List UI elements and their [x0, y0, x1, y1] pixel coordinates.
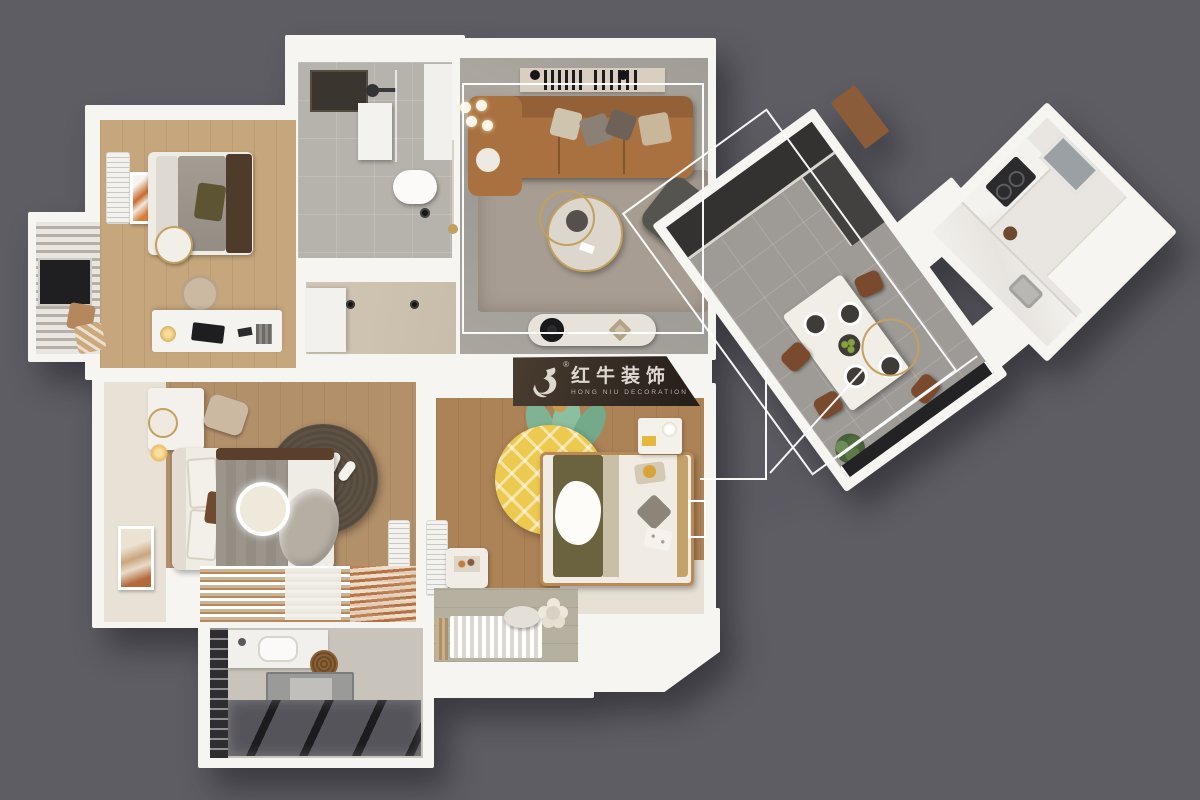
- accent-vline: [765, 368, 767, 480]
- laundry-glass-windows: [228, 700, 421, 756]
- floorplan-render: ® 红牛装饰 HONG NIU DECORATION: [0, 0, 1200, 800]
- laptop: [191, 322, 225, 344]
- shelf-knob-2: [618, 70, 628, 80]
- hall-spotlight-2: [410, 300, 419, 309]
- wardrobe-orange-slats: [350, 566, 416, 622]
- bedroom2-round-table: [155, 226, 193, 264]
- toilet: [393, 170, 437, 204]
- shelf-knob-1: [530, 70, 540, 80]
- kids-blanket-fold: [603, 455, 619, 577]
- logo-text-cn: 红牛装饰: [571, 367, 688, 387]
- laundry-sink: [258, 636, 298, 662]
- bathroom-vanity: [424, 64, 452, 160]
- kids-room-bottom-wall: [574, 608, 720, 692]
- nook-oval-table: [504, 606, 540, 628]
- logo-text-block: 红牛装饰 HONG NIU DECORATION: [571, 367, 688, 396]
- kids-book: [642, 436, 656, 446]
- kids-wall-art: [688, 500, 706, 538]
- entry-door-panel: [831, 85, 890, 149]
- phone: [237, 327, 252, 337]
- arc-floor-lamp: [452, 140, 454, 230]
- bull-logo-icon: ®: [529, 364, 563, 400]
- kids-toy-duck: [643, 465, 656, 478]
- bay-cushion-2: [73, 321, 106, 354]
- flower-center: [546, 606, 560, 620]
- kids-pillow-star: [636, 494, 673, 531]
- kids-lamp: [662, 422, 677, 437]
- wardrobe-louver-doors: [200, 566, 416, 622]
- kids-radiator: [426, 520, 448, 596]
- shower-glass-partition: [395, 70, 397, 162]
- bedroom2-desk-chair: [181, 275, 219, 313]
- master-throw-brown: [216, 448, 334, 460]
- desk-lamp: [160, 326, 176, 342]
- vanity-mirror: [148, 408, 178, 438]
- master-wall-art: [118, 526, 154, 590]
- kids-bed: [540, 452, 694, 586]
- registered-mark: ®: [563, 360, 569, 369]
- kids-nook-bottom-wall: [424, 660, 594, 698]
- apartment-plan: ® 红牛装饰 HONG NIU DECORATION: [0, 0, 1200, 800]
- bed-throw-brown: [226, 154, 252, 253]
- master-ceiling-light: [236, 482, 290, 536]
- toy-cabinet-window: [454, 556, 480, 572]
- bathroom-spotlight: [420, 208, 430, 218]
- laundry-window-frame-left: [210, 628, 228, 758]
- master-headboard: [172, 448, 186, 570]
- logo-text-en: HONG NIU DECORATION: [571, 389, 688, 396]
- shoe-cabinet: [306, 288, 346, 352]
- bedroom2-radiator: [106, 152, 130, 224]
- kids-pillow-dotted: [643, 527, 672, 551]
- hall-spotlight-1: [346, 300, 355, 309]
- bedroom2-desk: [152, 310, 282, 352]
- bed-cushion-olive: [194, 182, 227, 222]
- shower-head-icon: [366, 84, 379, 97]
- arc-lamp-base: [448, 224, 458, 234]
- nook-flower-cushion: [538, 598, 568, 628]
- bathroom-cabinet: [358, 103, 392, 160]
- accent-hline: [700, 478, 767, 480]
- wardrobe-white-panel: [285, 568, 341, 620]
- bedside-lamp-glow: [150, 444, 168, 462]
- desk-books: [256, 324, 272, 344]
- bay-window-glass: [38, 258, 92, 306]
- washer-door: [290, 678, 332, 700]
- nook-side-mat: [436, 618, 448, 660]
- kids-toy-cabinet: [446, 548, 488, 588]
- kids-nightstand: [638, 418, 682, 454]
- kids-headboard: [677, 455, 688, 577]
- laundry-faucet: [238, 638, 246, 646]
